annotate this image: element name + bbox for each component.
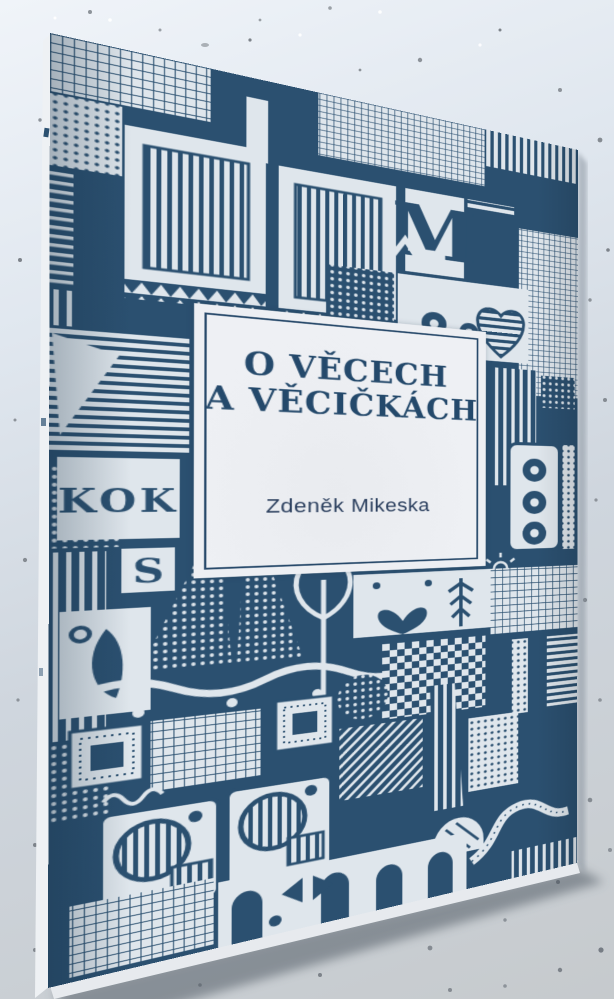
- author-name: Zdeněk Mikeska: [266, 494, 430, 517]
- title-panel-border: O VĚCECH A VĚCIČKÁCH Zdeněk Mikeska: [204, 312, 478, 569]
- book-cover: M: [48, 33, 578, 988]
- photo-of-book: M: [0, 0, 614, 999]
- book-shadow-right: [577, 152, 587, 872]
- title-panel: O VĚCECH A VĚCIČKÁCH Zdeněk Mikeska: [194, 303, 486, 578]
